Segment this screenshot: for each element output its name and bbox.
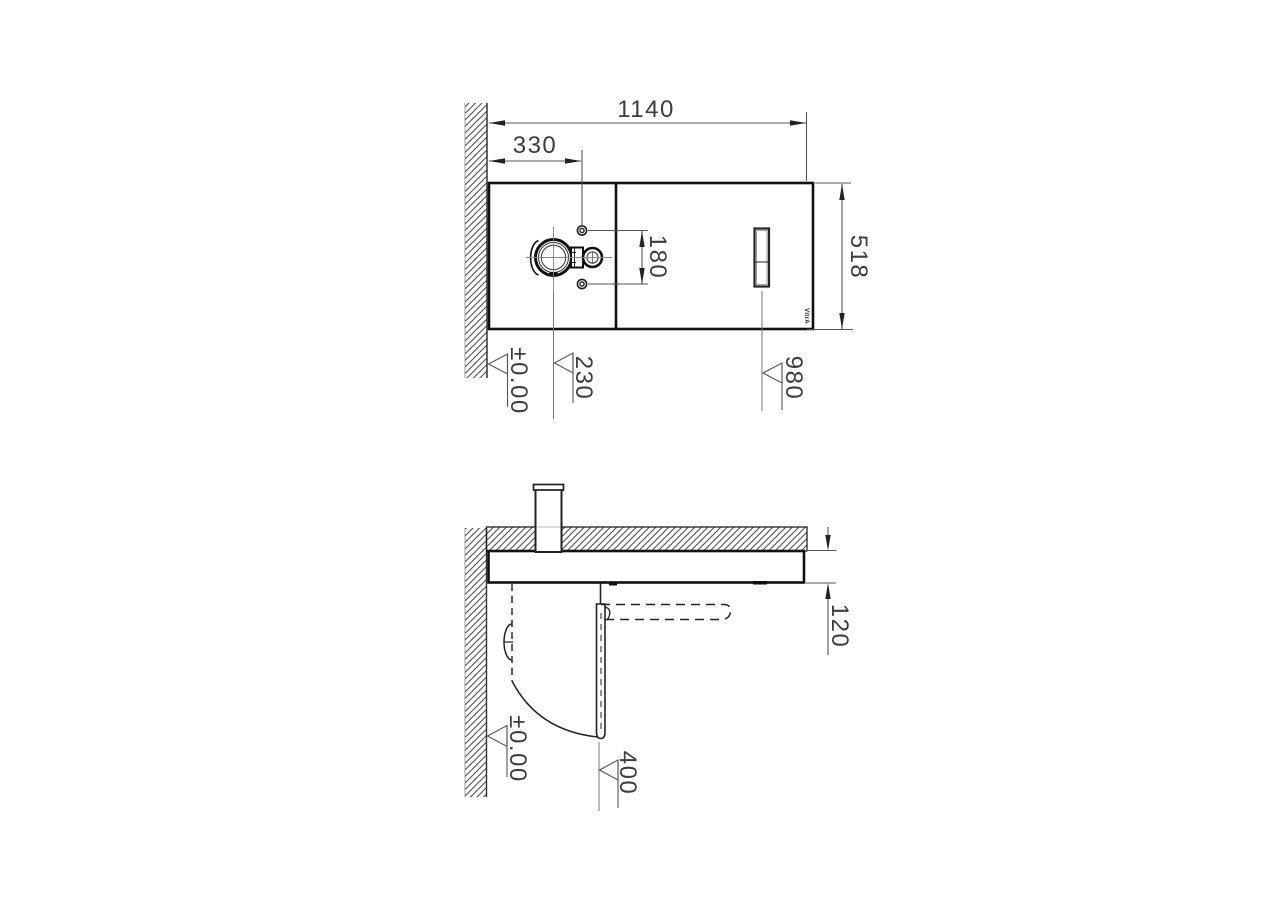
arrowhead	[790, 120, 806, 125]
arrowhead	[825, 583, 830, 599]
bolt-top	[577, 226, 586, 235]
level-label-datum-top: ±0.00	[506, 347, 530, 414]
arrowhead	[489, 120, 505, 125]
arrowhead	[489, 158, 505, 163]
control-panel	[755, 229, 770, 287]
slab-underside-tab-left	[609, 582, 617, 586]
technical-drawing-page: 1140 330 518 180 ±0.00 230 980 VitrA 120…	[0, 0, 1280, 900]
dim-label-330: 330	[513, 134, 558, 158]
arm-up-position-dashed	[601, 605, 731, 620]
level-label-230: 230	[571, 356, 595, 401]
pipe-body	[536, 489, 562, 552]
arrowhead	[825, 535, 830, 551]
arrowhead	[839, 184, 844, 200]
level-label-datum-side: ±0.00	[505, 715, 529, 782]
level-label-980: 980	[781, 356, 805, 401]
dim-label-120: 120	[827, 604, 851, 649]
arm-down-position	[597, 584, 610, 739]
dim-label-180: 180	[645, 235, 669, 280]
wall-hatch	[465, 103, 487, 378]
bolt-bottom	[577, 279, 586, 288]
brand-logo: VitrA	[803, 308, 809, 324]
side-wall-hatch	[465, 528, 487, 797]
level-label-400: 400	[615, 751, 639, 796]
dim-label-518: 518	[846, 235, 870, 280]
arrowhead	[839, 313, 844, 329]
dim-label-1140: 1140	[617, 98, 675, 122]
pipe-cap	[534, 485, 564, 491]
slab-underside-tab-right	[753, 581, 767, 585]
arrowhead	[565, 158, 581, 163]
slab-section	[489, 551, 805, 583]
supply-pipe	[534, 485, 564, 553]
